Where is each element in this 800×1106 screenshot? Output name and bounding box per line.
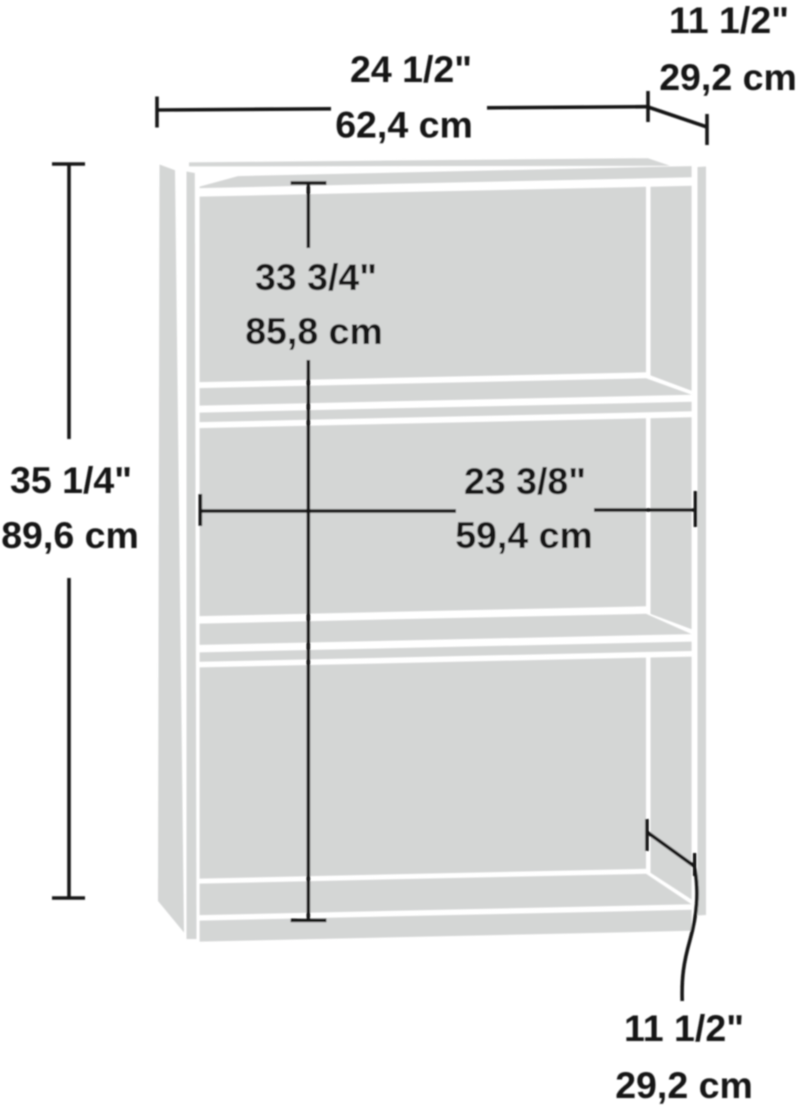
svg-text:35 1/4": 35 1/4": [10, 459, 132, 501]
svg-text:62,4 cm: 62,4 cm: [335, 104, 473, 146]
svg-text:11 1/2": 11 1/2": [624, 1007, 744, 1049]
svg-text:85,8 cm: 85,8 cm: [245, 310, 383, 352]
svg-text:29,2 cm: 29,2 cm: [615, 1064, 753, 1106]
svg-text:24 1/2": 24 1/2": [350, 48, 472, 90]
svg-text:59,4 cm: 59,4 cm: [455, 514, 593, 556]
svg-text:89,6 cm: 89,6 cm: [1, 514, 139, 556]
svg-text:33 3/4": 33 3/4": [255, 256, 377, 298]
svg-text:11 1/2": 11 1/2": [669, 0, 789, 41]
svg-text:29,2 cm: 29,2 cm: [659, 56, 797, 98]
svg-text:23 3/8": 23 3/8": [464, 460, 586, 502]
